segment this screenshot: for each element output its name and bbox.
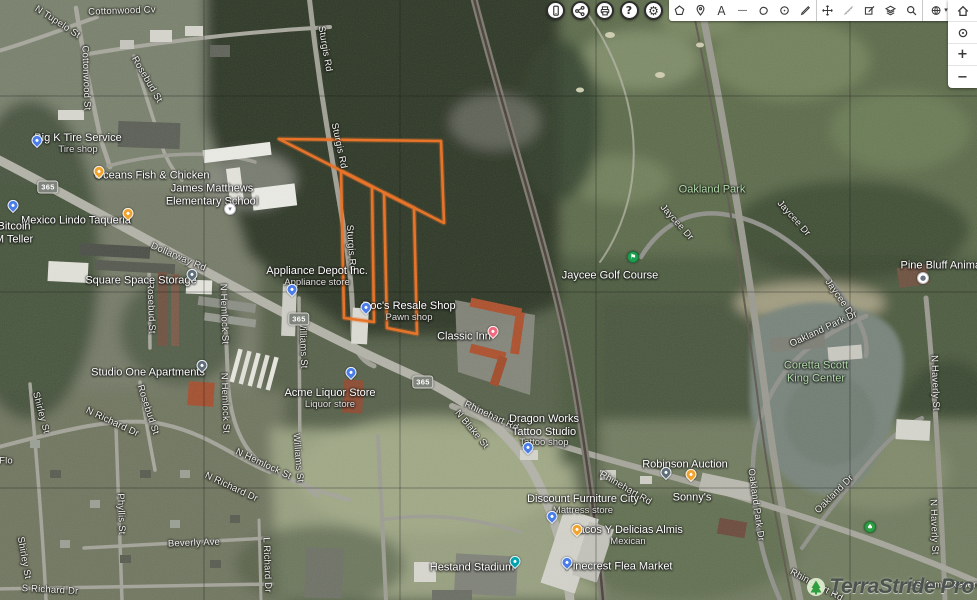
- road-label: Rosebud St: [144, 282, 157, 334]
- road-label: Shirley St: [29, 391, 51, 435]
- text-tool-icon: A: [717, 5, 725, 17]
- line-tool-icon: —: [738, 6, 748, 16]
- road-label: N Hemlock St: [233, 447, 292, 482]
- add-placemark-tool-button[interactable]: [690, 0, 711, 21]
- settings-button[interactable]: ⚙: [644, 1, 663, 20]
- poi-label[interactable]: Acme Liquor StoreLiquor store: [284, 387, 375, 411]
- poi-label[interactable]: Sonny's: [673, 492, 712, 505]
- road-label: N Richard Dr: [203, 471, 260, 505]
- poi-label[interactable]: Tacos Y Delicias AlmisMexican: [573, 524, 683, 548]
- marker-golf-icon[interactable]: ⚑: [627, 251, 639, 263]
- poi-label[interactable]: Oceans Fish & Chicken: [95, 170, 210, 183]
- map-controls: + −: [948, 0, 977, 88]
- ruler-icon: [842, 4, 855, 17]
- marker-auction-icon[interactable]: [658, 465, 674, 481]
- map-canvas[interactable]: Cottonwood CvN Tupelo StCottonwood StRos…: [0, 0, 977, 600]
- road-label: N Tupelo St: [32, 4, 81, 41]
- road-label: Jaycee Dr: [822, 278, 857, 321]
- home-icon: [956, 4, 970, 18]
- road-label: Oakland Park Dr: [744, 468, 765, 542]
- poi-label[interactable]: Coretta ScottKing Center: [784, 359, 848, 384]
- magnifier-icon: [905, 4, 918, 17]
- search-tool-button[interactable]: [901, 0, 922, 21]
- road-label: N Hemlock St: [216, 284, 229, 345]
- road-label: Williams St: [296, 319, 309, 369]
- print-button[interactable]: [595, 1, 614, 20]
- marker-store-icon[interactable]: [544, 509, 560, 525]
- poi-label[interactable]: Hestand Stadium: [430, 562, 514, 575]
- route-shield: 365: [288, 313, 309, 326]
- road-label: Oakland Dr: [813, 473, 856, 516]
- marker-park-tree-icon[interactable]: ♠: [864, 521, 876, 533]
- road-label: L Richard Dr: [260, 537, 273, 593]
- print-icon: [599, 5, 611, 17]
- poi-label[interactable]: Oakland Park: [679, 184, 746, 197]
- pin-icon: [694, 4, 707, 17]
- road-label: Sturgis Rd: [328, 122, 348, 170]
- circle-dot-icon: [778, 4, 791, 17]
- poi-label[interactable]: Square Space Storage: [85, 275, 196, 288]
- draw-polygon-tool-button[interactable]: [753, 0, 774, 21]
- area-shape-tool-button[interactable]: [669, 0, 690, 21]
- road-label: Jaycee Dr: [774, 199, 812, 239]
- marker-store-icon[interactable]: [343, 365, 359, 381]
- route-shield: 365: [412, 376, 433, 389]
- zoom-out-button[interactable]: −: [948, 66, 977, 88]
- poi-label[interactable]: Classic Inn: [437, 331, 491, 344]
- draw-circle-tool-button[interactable]: [774, 0, 795, 21]
- zoom-in-button[interactable]: +: [948, 44, 977, 66]
- move-tool-button[interactable]: [817, 0, 838, 21]
- help-icon: ?: [626, 5, 632, 16]
- measure-tool-button[interactable]: [838, 0, 859, 21]
- share-icon: [574, 5, 586, 17]
- polygon-icon: [757, 4, 770, 17]
- road-label: N Blake St: [452, 409, 491, 452]
- road-label: Rosebud St: [134, 384, 160, 437]
- edit-shape-tool-button[interactable]: [859, 0, 880, 21]
- map-labels: Cottonwood CvN Tupelo StCottonwood StRos…: [0, 0, 977, 600]
- road-label: Jaycee Dr: [657, 203, 695, 243]
- road-label: Sturgis Rd: [343, 224, 357, 271]
- poi-label[interactable]: Doc's Resale ShopPawn shop: [362, 300, 455, 324]
- road-label: Phyllis St: [114, 493, 126, 534]
- poi-label[interactable]: BitcoinM Teller: [0, 220, 33, 245]
- marker-hotel-icon[interactable]: [485, 324, 501, 340]
- marker-school-icon[interactable]: ▾: [224, 203, 236, 215]
- toolbar-round-group: ? ⚙: [546, 1, 663, 20]
- gear-icon: ⚙: [648, 5, 659, 17]
- road-label: Rhinehart Rd: [462, 400, 520, 435]
- draw-line-tool-button[interactable]: —: [732, 0, 753, 21]
- poi-label[interactable]: Studio One Apartments: [91, 367, 205, 380]
- road-label: Rosebud St: [128, 55, 163, 105]
- pen-icon: [799, 4, 812, 17]
- edit-shape-icon: [863, 4, 876, 17]
- poi-label[interactable]: Jaycee Golf Course: [562, 270, 659, 283]
- layers-tool-button[interactable]: [880, 0, 901, 21]
- poi-label[interactable]: Discount Furniture CityMattress store: [527, 493, 639, 517]
- road-label: N Haverly St: [928, 355, 941, 411]
- road-label: Rhinehart Rd: [597, 470, 653, 509]
- road-label: US Army Reserv: [908, 581, 977, 592]
- road-label: Oakland Park Dr: [789, 310, 860, 351]
- share-button[interactable]: [571, 1, 590, 20]
- marker-restaurant-icon[interactable]: [569, 522, 585, 538]
- road-label: Beverly Ave: [168, 538, 221, 551]
- road-label: Cottonwood Cv: [88, 5, 156, 18]
- poi-label[interactable]: Big K Tire ServiceTire shop: [34, 132, 121, 156]
- target-icon: [956, 26, 970, 40]
- poi-label[interactable]: Dragon WorksTattoo StudioTattoo shop: [509, 413, 579, 449]
- road-label: Cottonwood St: [78, 45, 91, 110]
- poi-label[interactable]: Pinecrest Flea Market: [566, 561, 673, 574]
- route-shield: 365: [37, 181, 58, 194]
- locate-button[interactable]: [948, 22, 977, 44]
- road-label: N Hemlock St: [217, 373, 230, 434]
- mobile-icon: [550, 4, 562, 18]
- globe-icon: [930, 4, 943, 17]
- marker-tire-shop-icon[interactable]: [29, 133, 45, 149]
- marker-store-icon[interactable]: [520, 440, 536, 456]
- road-label: Flo: [0, 457, 13, 468]
- mobile-preview-button[interactable]: [546, 1, 565, 20]
- drawing-toolbar: A — ▾: [669, 0, 955, 21]
- marker-storage-icon[interactable]: [184, 267, 200, 283]
- marker-veterinary-icon[interactable]: ●: [917, 272, 929, 284]
- minus-icon: −: [957, 71, 968, 84]
- help-button[interactable]: ?: [620, 1, 639, 20]
- add-text-tool-button[interactable]: A: [711, 0, 732, 21]
- road-label: S Richard Dr: [21, 584, 78, 598]
- move-icon: [821, 4, 834, 17]
- road-label: N Haverly St: [927, 499, 940, 555]
- road-label: Shirley St: [14, 536, 32, 580]
- poi-label[interactable]: Pine Bluff Animal: [901, 260, 977, 273]
- marker-store-icon[interactable]: [358, 300, 374, 316]
- road-label: Rhinehart Rd: [788, 567, 845, 600]
- marker-restaurant-icon[interactable]: [120, 206, 136, 222]
- home-button[interactable]: [948, 0, 977, 22]
- marker-market-icon[interactable]: [559, 555, 575, 571]
- road-label: Dollarway Rd: [149, 241, 207, 274]
- marker-restaurant-icon[interactable]: [683, 467, 699, 483]
- marker-atm-icon[interactable]: [5, 198, 21, 214]
- road-label: Williams St: [289, 433, 304, 483]
- marker-apartments-icon[interactable]: [194, 358, 210, 374]
- layers-icon: [884, 4, 897, 17]
- poi-label[interactable]: Mexico Lindo Taqueria: [21, 215, 131, 228]
- plus-icon: +: [957, 48, 968, 61]
- poi-label[interactable]: James MatthewsElementary School: [166, 182, 258, 207]
- road-label: Sturgis Rd: [315, 25, 334, 73]
- marker-restaurant-icon[interactable]: [91, 164, 107, 180]
- pentagon-icon: [673, 4, 686, 17]
- poi-label[interactable]: Robinson Auction: [642, 459, 728, 472]
- draw-path-tool-button[interactable]: [795, 0, 816, 21]
- road-label: N Richard Dr: [84, 406, 141, 440]
- marker-stadium-icon[interactable]: [507, 554, 523, 570]
- marker-store-icon[interactable]: [284, 282, 300, 298]
- poi-label[interactable]: Appliance Depot Inc.Appliance store: [266, 265, 368, 289]
